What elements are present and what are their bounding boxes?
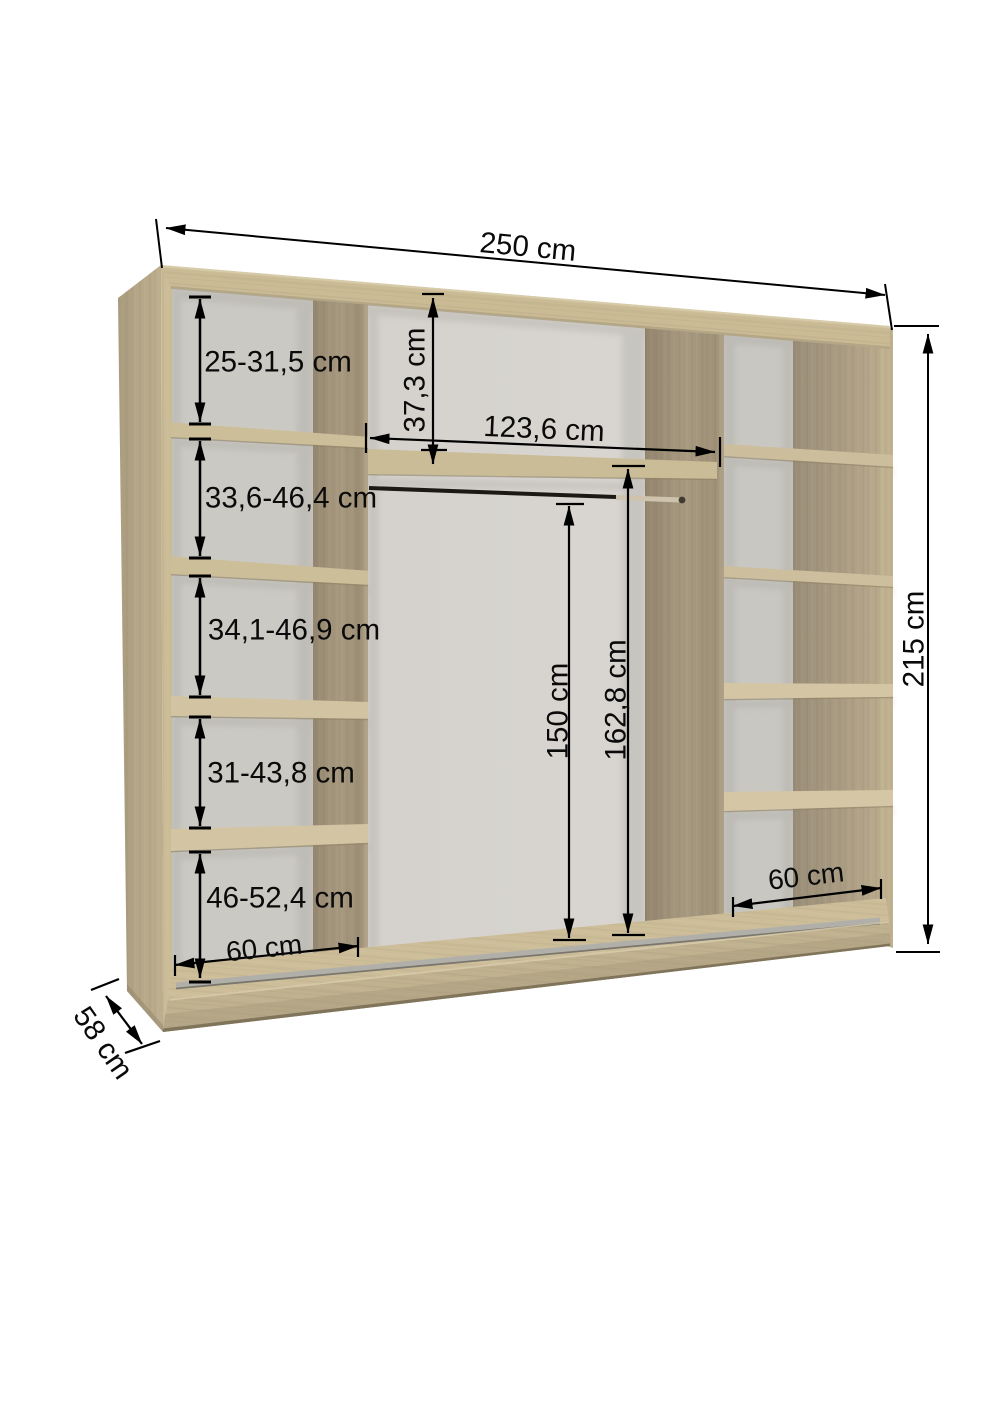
svg-text:150 cm: 150 cm (542, 663, 575, 760)
svg-text:33,6-46,4 cm: 33,6-46,4 cm (205, 482, 377, 515)
svg-text:123,6 cm: 123,6 cm (483, 410, 606, 448)
svg-text:31-43,8 cm: 31-43,8 cm (207, 757, 355, 790)
svg-text:25-31,5 cm: 25-31,5 cm (204, 346, 352, 379)
svg-text:46-52,4 cm: 46-52,4 cm (206, 882, 354, 915)
svg-text:215 cm: 215 cm (898, 591, 931, 688)
svg-text:37,3 cm: 37,3 cm (399, 328, 432, 433)
svg-text:162,8 cm: 162,8 cm (600, 639, 633, 760)
svg-text:34,1-46,9 cm: 34,1-46,9 cm (208, 614, 380, 647)
